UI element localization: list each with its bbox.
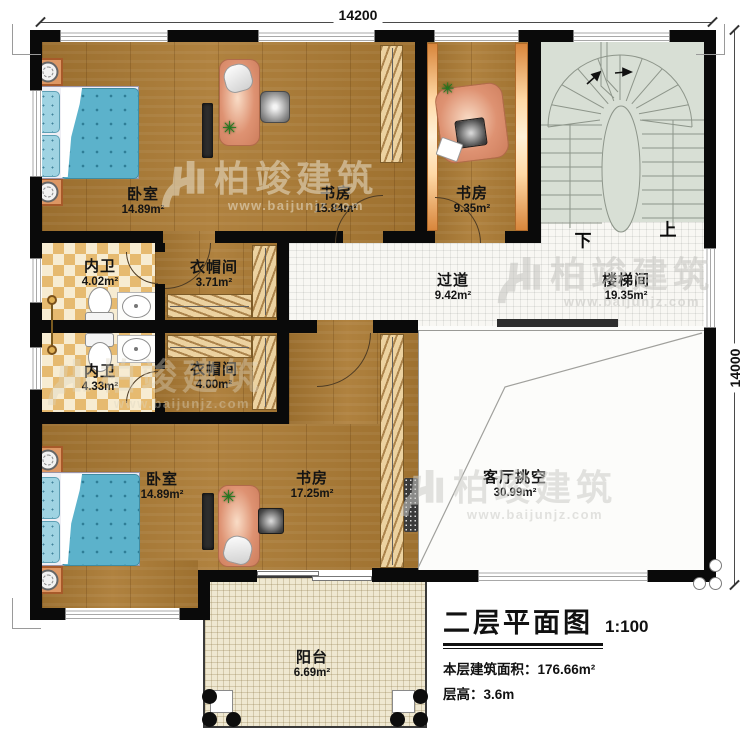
sink-drain <box>134 347 138 351</box>
balcony-column <box>226 712 241 727</box>
room-label-study-bottom: 书房17.25m² <box>291 470 334 502</box>
corner-column-circle <box>709 577 722 590</box>
window <box>30 347 42 390</box>
window <box>60 30 168 42</box>
floor-plan-image: ✳ ✳ ✳ <box>0 0 750 737</box>
plant-icon: ✳ <box>441 82 454 98</box>
towel-rail <box>51 300 53 350</box>
room-label-closet-top: 衣帽间3.71m² <box>190 259 238 291</box>
dimension-right-value: 14000 <box>727 344 743 393</box>
plant-icon: ✳ <box>222 119 237 137</box>
wall-segment <box>155 284 165 320</box>
wardrobe <box>380 45 403 163</box>
wall-segment <box>30 412 289 424</box>
wall-segment <box>198 570 257 582</box>
window <box>434 30 519 42</box>
computer-monitor <box>258 508 284 534</box>
room-label-bedroom-bottom: 卧室14.89m² <box>141 471 184 503</box>
closet-rail <box>167 335 252 358</box>
dimension-line-right <box>734 30 735 585</box>
cabinet-strip <box>515 43 528 231</box>
window <box>30 258 42 303</box>
staircase <box>541 42 704 242</box>
room-label-closet-bottom: 衣帽间4.00m² <box>190 361 238 393</box>
window <box>258 30 375 42</box>
floor-suite-bottom-ext <box>42 560 198 615</box>
sink-drain <box>134 304 138 308</box>
stairs-up-label: 上 <box>660 216 677 241</box>
balcony-column <box>413 712 428 727</box>
window <box>65 608 180 620</box>
wall-segment <box>155 403 165 412</box>
void-diagonal-lines <box>415 328 707 573</box>
sliding-door <box>257 571 319 576</box>
tv-partition <box>202 103 213 158</box>
tv-partition <box>202 493 214 550</box>
floor-height-row: 层高：3.6m <box>443 683 648 703</box>
wall-segment <box>373 320 418 333</box>
wall-segment <box>383 231 435 243</box>
extension-line-jog <box>12 24 41 55</box>
wall-segment <box>372 568 418 582</box>
wall-segment <box>418 570 478 582</box>
window <box>704 248 716 328</box>
wardrobe <box>380 334 404 568</box>
plant-icon: ✳ <box>221 488 236 506</box>
wall-segment <box>375 30 434 42</box>
wall-segment <box>30 320 289 333</box>
room-label-bedroom-top: 卧室14.89m² <box>122 186 165 218</box>
wall-segment <box>30 231 163 243</box>
stairs-down-label: 下 <box>575 227 592 252</box>
room-label-study-top: 书房15.84m² <box>315 185 358 217</box>
corner-column-circle <box>709 559 722 572</box>
room-label-stairwell: 楼梯间19.35m² <box>602 272 650 304</box>
room-label-bath-bottom: 内卫4.33m² <box>82 363 118 395</box>
closet-rail <box>167 294 252 318</box>
extension-line-jog <box>12 598 41 629</box>
room-label-living-void: 客厅挑空30.99m² <box>483 469 547 501</box>
void-beam <box>497 319 618 327</box>
drawing-title: 二层平面图 <box>443 601 593 640</box>
corner-column-circle <box>693 577 706 590</box>
balcony-column <box>413 689 428 704</box>
tv-wall-panel <box>404 478 418 532</box>
room-label-study-small: 书房9.35m² <box>454 185 490 217</box>
dimension-top-value: 14200 <box>334 7 383 23</box>
closet-rail <box>252 245 277 318</box>
balcony-column <box>202 712 217 727</box>
window <box>478 570 648 582</box>
wall-segment <box>155 333 165 369</box>
towel-rail-knob <box>47 295 57 305</box>
room-label-balcony: 阳台6.69m² <box>294 649 330 681</box>
wall-segment <box>168 30 258 42</box>
wall-segment <box>215 231 343 243</box>
wall-segment <box>648 570 716 582</box>
title-underline <box>443 643 603 646</box>
wall-segment <box>155 243 165 252</box>
drawing-scale: 1:100 <box>605 617 648 637</box>
room-label-hallway: 过道9.42m² <box>435 272 471 304</box>
office-chair <box>260 91 290 123</box>
wall-segment <box>415 42 427 243</box>
closet-rail <box>252 335 277 410</box>
balcony-column <box>390 712 405 727</box>
balcony-column-pad <box>392 690 415 713</box>
room-label-bath-top: 内卫4.02m² <box>82 258 118 290</box>
extension-line-jog <box>696 24 725 55</box>
sliding-door <box>312 576 372 581</box>
window <box>30 90 42 177</box>
title-block: 二层平面图 1:100 本层建筑面积：176.66m² 层高：3.6m <box>443 601 648 703</box>
floor-area-row: 本层建筑面积：176.66m² <box>443 658 648 678</box>
wall-segment <box>528 42 541 243</box>
window <box>573 30 670 42</box>
towel-rail-knob <box>47 345 57 355</box>
balcony-column <box>202 689 217 704</box>
wall-segment <box>289 320 317 333</box>
title-underline-thin <box>443 648 603 649</box>
wall-segment <box>277 333 289 424</box>
wall-segment <box>519 30 573 42</box>
